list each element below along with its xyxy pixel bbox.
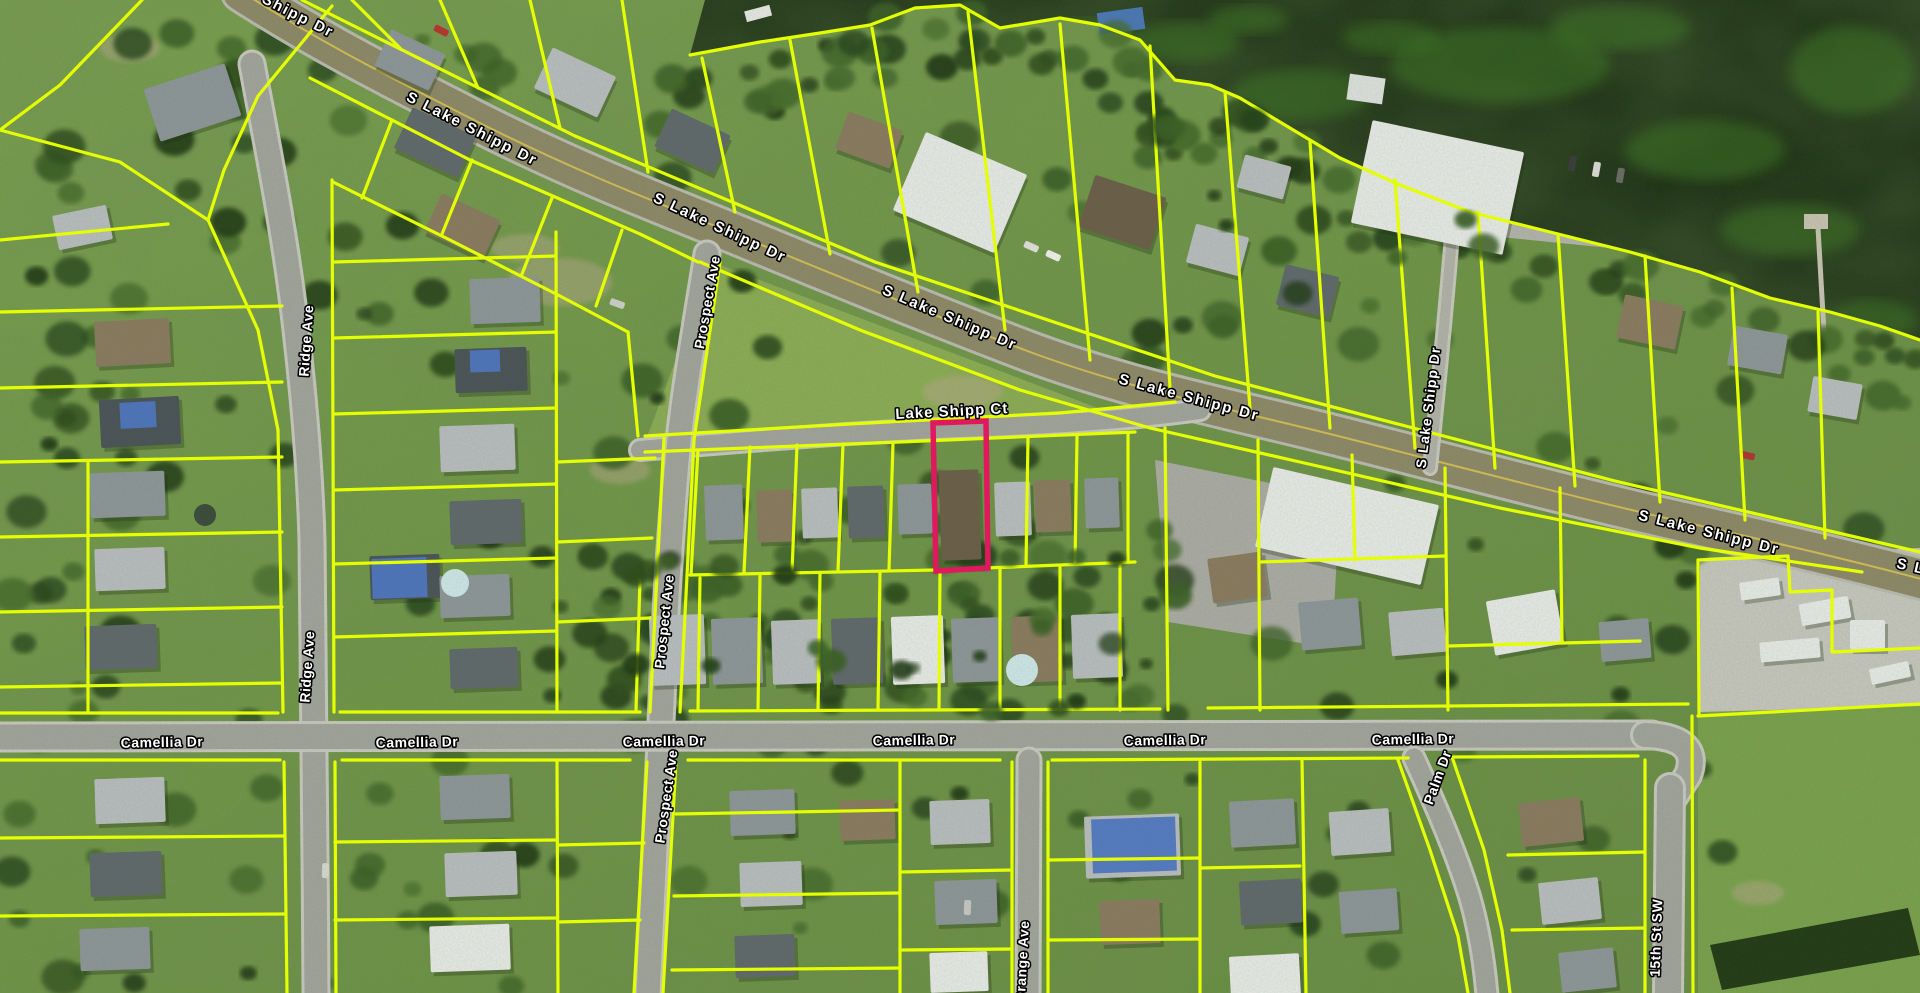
street-label: Camellia Dr [623, 732, 706, 749]
parcel-line [0, 914, 284, 916]
parcel-line [900, 870, 1012, 872]
parcel-line [1048, 939, 1200, 940]
parcel-line [335, 918, 557, 920]
parcel-line [558, 920, 640, 922]
street-label: Camellia Dr [1124, 731, 1207, 748]
street-label: Camellia Dr [121, 733, 204, 750]
parcel-line [1258, 440, 1260, 710]
aerial-parcel-map[interactable]: Shipp DrS Lake Shipp DrS Lake Shipp DrS … [0, 0, 1920, 993]
parcel-line [558, 843, 644, 845]
parcel-line [1452, 756, 1638, 757]
parcel-line [332, 180, 334, 712]
parcel-line [1052, 758, 1408, 760]
parcel-line [556, 232, 557, 712]
parcel-line [335, 840, 557, 842]
parcel-line [1698, 560, 1699, 714]
parcel-line [1048, 858, 1200, 860]
parcel-line [900, 949, 1012, 950]
parcel-line [1026, 438, 1028, 566]
parcel-line [1512, 928, 1645, 930]
parcel-line [698, 578, 700, 710]
street-label: Camellia Dr [873, 731, 956, 748]
parcel-line [557, 762, 558, 993]
parcel-line [672, 968, 900, 970]
street-label: Camellia Dr [376, 733, 459, 750]
parcel-line [335, 762, 336, 993]
street-label: 15th St SW [1647, 898, 1666, 977]
parcel-line [1692, 716, 1693, 993]
parcel-line [0, 836, 284, 838]
aerial-map-viewport[interactable]: Shipp DrS Lake Shipp DrS Lake Shipp DrS … [0, 0, 1920, 993]
imagery-grain [0, 0, 1920, 993]
parcel-line [939, 570, 940, 710]
parcel-line [690, 709, 1160, 711]
parcel-line [878, 572, 880, 710]
parcel-line [1200, 866, 1300, 868]
street-label: Camellia Dr [1372, 730, 1455, 747]
parcel-line [1560, 488, 1562, 642]
parcel-line [1075, 436, 1077, 564]
parcel-line [758, 576, 760, 710]
